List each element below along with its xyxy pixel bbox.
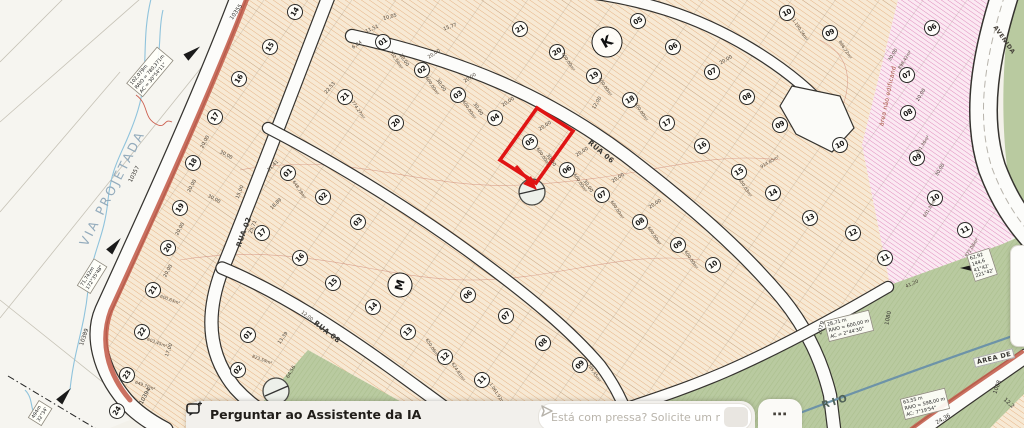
ai-summary-input-wrap	[538, 403, 752, 428]
send-button[interactable]	[724, 407, 748, 427]
ai-summary-input[interactable]	[539, 411, 724, 424]
more-options-button[interactable]: ⋯	[758, 399, 802, 428]
ai-assistant-bar: Perguntar ao Assistente da IA	[186, 401, 755, 428]
plat-map-viewer: 1415161718192021222324010203060708091716…	[0, 0, 1024, 428]
ask-ai-label: Perguntar ao Assistente da IA	[210, 407, 421, 422]
plat-map-canvas	[0, 0, 1024, 428]
ask-ai-button[interactable]: Perguntar ao Assistente da IA	[186, 407, 421, 422]
side-panel-handle[interactable]	[1010, 245, 1024, 347]
